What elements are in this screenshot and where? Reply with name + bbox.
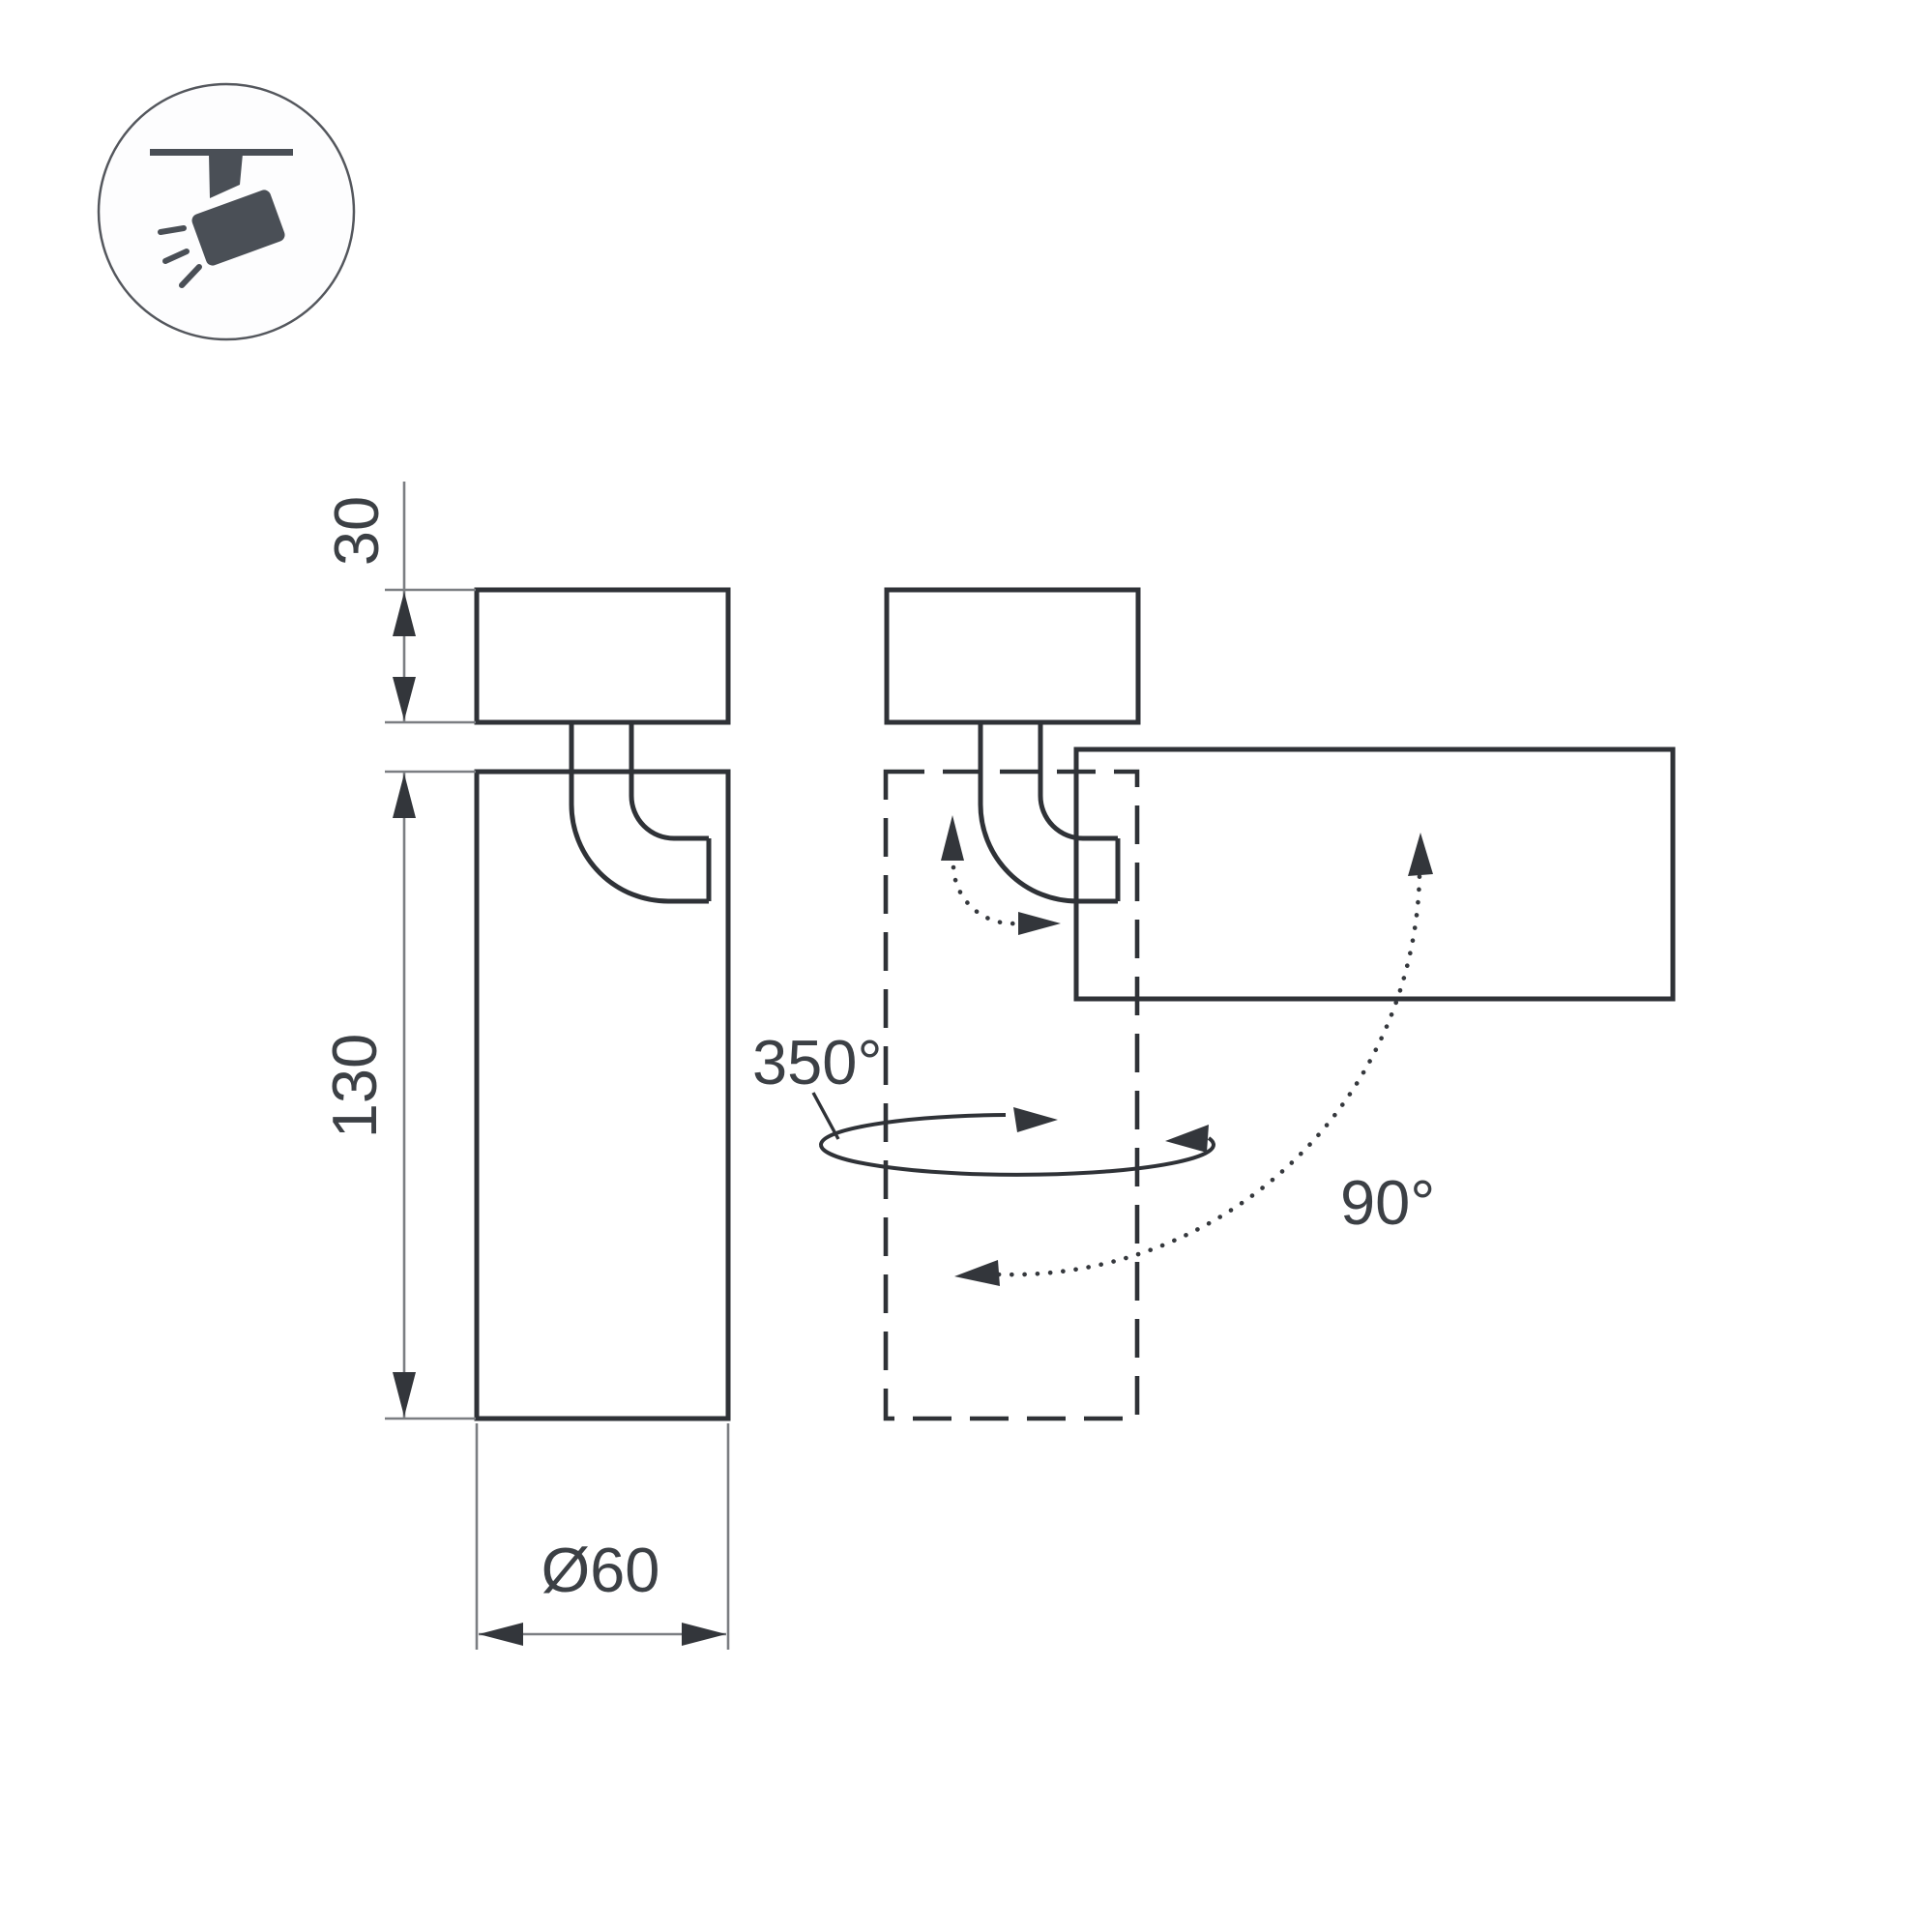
arrowhead-up-icon bbox=[941, 815, 964, 861]
diameter-label: Ø60 bbox=[542, 1535, 660, 1605]
tilted-cylinder-body bbox=[1076, 749, 1673, 999]
arrowhead-left-icon bbox=[1165, 1125, 1209, 1153]
fold-arc bbox=[953, 867, 1015, 923]
arrowhead-right-icon bbox=[1013, 1107, 1058, 1132]
rotated-mount-base bbox=[887, 590, 1138, 722]
arrowhead-down-icon bbox=[393, 1372, 416, 1417]
body-height-label: 130 bbox=[319, 1034, 390, 1138]
product-type-badge bbox=[99, 84, 354, 339]
front-arm-inner bbox=[631, 722, 709, 838]
arrowhead-down-icon bbox=[393, 677, 416, 720]
tilt-90-annotation: 90° bbox=[954, 833, 1435, 1286]
arrowhead-right-icon bbox=[1018, 912, 1061, 935]
arrowhead-up-icon bbox=[1408, 833, 1433, 876]
pan-ellipse-top-arc bbox=[821, 1115, 1006, 1145]
pan-ellipse-main-arc bbox=[821, 1138, 1214, 1175]
pan-350-annotation: 350° bbox=[752, 1027, 1214, 1175]
dimension-diameter: Ø60 bbox=[477, 1423, 728, 1650]
arrowhead-right-icon bbox=[682, 1623, 726, 1646]
drawing-page: 30 130 Ø60 350° bbox=[0, 0, 1932, 1932]
arrowhead-up-icon bbox=[393, 592, 416, 636]
front-cylinder-body bbox=[477, 772, 728, 1419]
dimension-30: 30 bbox=[321, 482, 476, 722]
tilt-angle-label: 90° bbox=[1340, 1167, 1435, 1238]
base-height-label: 30 bbox=[321, 496, 392, 566]
arm-fold-annotation bbox=[941, 815, 1061, 935]
spotlight-dimension-drawing: 30 130 Ø60 350° bbox=[0, 0, 1932, 1932]
arrowhead-left-icon bbox=[954, 1260, 1000, 1286]
front-view bbox=[477, 590, 728, 1419]
front-mount-base bbox=[477, 590, 728, 722]
pan-label-leader bbox=[813, 1093, 838, 1139]
rotated-arm-inner bbox=[1040, 722, 1118, 838]
dimension-130: 130 bbox=[319, 772, 476, 1419]
arrowhead-left-icon bbox=[479, 1623, 523, 1646]
pan-angle-label: 350° bbox=[752, 1027, 882, 1098]
light-ray-icon bbox=[161, 228, 184, 232]
rotated-view bbox=[886, 590, 1673, 1419]
arrowhead-up-icon bbox=[393, 774, 416, 818]
ghost-cylinder-body bbox=[886, 772, 1137, 1419]
front-arm-outer bbox=[571, 722, 709, 901]
